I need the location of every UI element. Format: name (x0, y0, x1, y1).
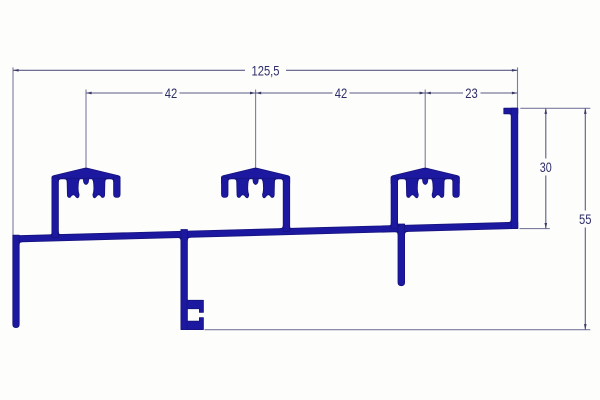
svg-text:42: 42 (165, 86, 178, 101)
svg-text:42: 42 (335, 86, 348, 101)
svg-text:30: 30 (540, 160, 552, 175)
svg-text:23: 23 (465, 86, 478, 101)
svg-text:125,5: 125,5 (252, 63, 280, 78)
svg-text:55: 55 (579, 212, 592, 227)
